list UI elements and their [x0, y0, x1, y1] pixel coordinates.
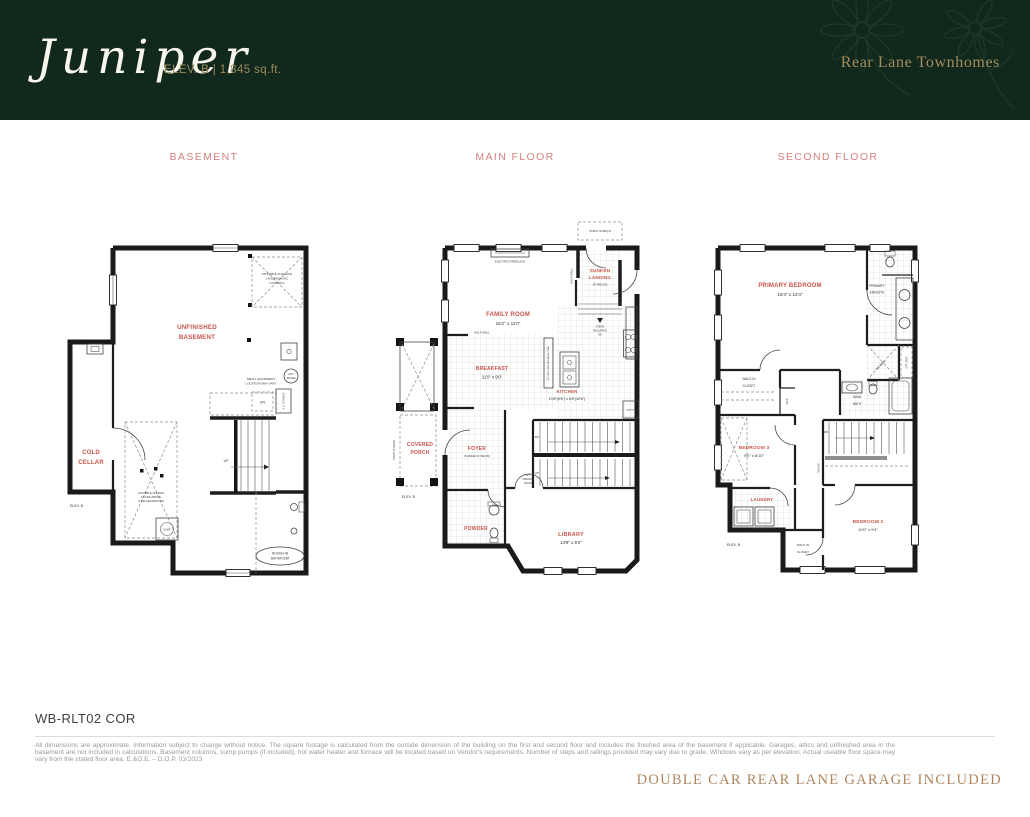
- foyer-sub-label: (SUNKEN IF REQ'D): [464, 454, 490, 458]
- covered-porch-label: COVERED: [407, 442, 433, 448]
- family-room-label: FAMILY ROOM: [486, 312, 530, 318]
- main-floorplan: STEPS IF REQ'D COVERED PORCH DN UP: [390, 218, 650, 590]
- floor-title-basement: BASEMENT: [170, 151, 239, 163]
- main-tiled-floors: [447, 250, 637, 545]
- breakfast-bar-label: KITCHEN SIDE BREAKFAST BAR: [547, 346, 550, 380]
- unfinished-basement-label: BASEMENT: [179, 334, 215, 341]
- floor-title-second: SECOND FLOOR: [778, 151, 879, 163]
- model-code: WB-RLT02 COR: [35, 711, 136, 726]
- primary-bedroom-label: PRIMARY BEDROOM: [758, 283, 821, 289]
- second-dn-label: DN: [824, 430, 828, 434]
- sump-label: SUMP: [164, 528, 171, 531]
- pantry-label: PANTRY: [627, 409, 636, 412]
- second-stairs: DN RAILING: [818, 422, 911, 473]
- railing-label: RAILING: [818, 463, 821, 473]
- footer-divider: [35, 736, 995, 737]
- steps-required-label: REQUIRED: [593, 329, 607, 333]
- laundry-label: LAUNDRY: [751, 497, 774, 502]
- french-door-label: DOOR: [524, 481, 532, 485]
- primary-ensuite-label: PRIMARY: [869, 284, 885, 288]
- basement-up-label: UP: [224, 459, 230, 463]
- floorplan-sheet: Juniper ELEV. B | 1,845 sq.ft. Rear Lane…: [0, 0, 1030, 817]
- kitchen-label: KITCHEN: [557, 389, 578, 394]
- primary-bedroom-dim: 16'4" x 12'4": [777, 292, 803, 297]
- walkin-closet-label: CLOSET: [743, 384, 756, 388]
- disclaimer-text: All dimensions are approximate. Informat…: [35, 742, 895, 763]
- main-stairs: DN UP: [533, 422, 637, 486]
- floor-title-main: MAIN FLOOR: [475, 151, 554, 163]
- furnace-zone-label: LOCATION: [269, 281, 284, 285]
- basement-dn-label: DN: [260, 401, 266, 405]
- basement-sunken-foyer-zone: POSSIBLE SUNKEN FOYER ABOVE (LOW HEADROO…: [125, 422, 178, 540]
- sunken-landing-label: LANDING: [589, 275, 612, 280]
- primary-ensuite-label: ENSUITE: [870, 291, 885, 295]
- steps-required-label: STEPS: [596, 325, 605, 329]
- bedroom3-dim: 9'0" x 8'10": [744, 453, 764, 458]
- community-name: Rear Lane Townhomes: [841, 54, 1000, 72]
- linen-label: LINEN: [786, 398, 789, 405]
- library-dim: 14'8" x 9'2": [560, 540, 582, 545]
- furnace-label: H.E. FURNACE: [283, 392, 286, 409]
- sunken-landing-label: (IF REQ'D): [593, 283, 608, 287]
- porch-steps-label: STEPS IF REQ'D: [392, 440, 396, 460]
- rough-in-label: ROUGH-IN: [272, 552, 289, 556]
- breakfast-dim: 11'0" x 9'0": [482, 375, 503, 380]
- main-up-label: UP: [535, 471, 539, 475]
- rough-in-label: BATHROOM: [271, 557, 290, 561]
- fireplace-label: ELECTRIC FIREPLACE: [495, 260, 525, 264]
- half-wall-label: HALF WALL: [570, 268, 574, 284]
- basement-interior-walls: [87, 254, 306, 493]
- basement-rough-in-bathroom: ROUGH-IN BATHROOM: [256, 492, 304, 573]
- header-banner: Juniper ELEV. B | 1,845 sq.ft. Rear Lane…: [0, 0, 1030, 120]
- basement-furnace-zone: POSSIBLE FURNACE LANDING/HVAC LOCATION: [252, 257, 302, 307]
- french-door-label: OPT.: [525, 473, 531, 477]
- hot-water-label: HOT: [288, 372, 294, 376]
- sunken-landing-label: SUNKEN: [590, 268, 611, 273]
- opt-cabinets-label: OPT. LOWER CABINETS: [749, 527, 775, 530]
- walkin-closet2-label: CLOSET: [797, 550, 809, 554]
- basement-stairs: UP: [210, 393, 276, 493]
- main-bath-label: BATH: [853, 402, 862, 406]
- opt-seat-label: OPT. SEAT: [906, 356, 909, 369]
- covered-porch-label: PORCH: [410, 450, 429, 456]
- basement-mech-equipment: HOT WATER MECH. EQUIPMENT LOCATION MAY V…: [246, 343, 298, 413]
- library-label: LIBRARY: [558, 532, 584, 538]
- hot-water-label: WATER: [286, 376, 295, 380]
- main-bath-label: MAIN: [853, 395, 862, 399]
- walkin-closet-label: WALK-IN: [742, 377, 756, 381]
- family-room-dim: 16'2" x 11'0": [496, 321, 521, 326]
- cold-cellar-label: COLD: [82, 450, 100, 456]
- main-dn-label: DN: [535, 435, 539, 439]
- cold-cellar-label: CELLAR: [78, 460, 104, 466]
- main-porch: STEPS IF REQ'D COVERED PORCH: [392, 338, 438, 486]
- breakfast-label: BREAKFAST: [476, 366, 508, 372]
- mech-label: MECH. EQUIPMENT: [247, 377, 276, 381]
- unfinished-basement-label: UNFINISHED: [177, 324, 217, 331]
- main-elevation-label: ELEV. B: [402, 495, 416, 499]
- bedroom3-label: BEDROOM 3: [739, 445, 770, 451]
- bedroom2-dim: 10'0" x 9'4": [858, 527, 878, 532]
- french-door-label: FRENCH: [523, 477, 534, 481]
- sunken-zone-label: (LOW HEADROOM): [138, 499, 164, 503]
- second-floorplan: SHOWER OPT. SEAT DN RAILING: [705, 230, 950, 590]
- mech-label: LOCATION MAY VARY: [246, 382, 277, 386]
- bedroom2-label: BEDROOM 2: [853, 519, 884, 525]
- furnace-zone-label: POSSIBLE FURNACE: [262, 272, 292, 276]
- foyer-label: FOYER: [468, 446, 486, 452]
- furnace-zone-label: LANDING/HVAC: [266, 277, 289, 281]
- steps-if-reqd-label: STEPS IF REQ'D: [589, 229, 611, 233]
- basement-elevation-label: ELEV. B: [70, 504, 84, 508]
- garage-note: DOUBLE CAR REAR LANE GARAGE INCLUDED: [637, 772, 1002, 789]
- kitchen-dim: 13'8"(9'6") x 6'6"(10'6"): [549, 397, 585, 401]
- basement-floorplan: UP POSSIBLE FURNACE LANDING/HVAC LOCATIO…: [60, 230, 335, 590]
- basement-windows: [110, 245, 251, 577]
- elevation-info: ELEV. B | 1,845 sq.ft.: [164, 64, 282, 76]
- powder-label: POWDER: [464, 526, 488, 532]
- steps-required-label: DN: [598, 333, 602, 337]
- second-elevation-label: ELEV. B: [727, 543, 741, 547]
- basement-exterior-walls: [70, 248, 306, 573]
- half-wall-label: HALF WALL: [474, 331, 490, 335]
- walkin-closet2-label: WALK-IN: [797, 543, 809, 547]
- plan-name: Juniper: [36, 30, 253, 85]
